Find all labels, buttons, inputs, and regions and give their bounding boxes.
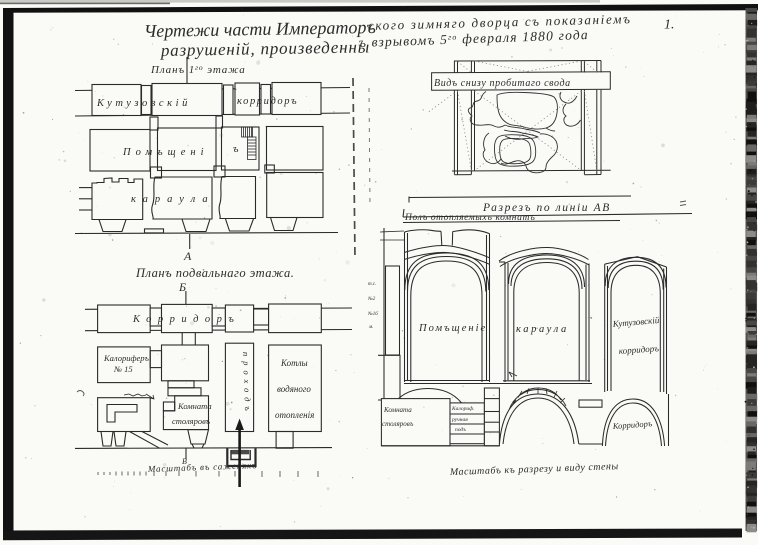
- svg-text:Котлы: Котлы: [280, 358, 308, 368]
- svg-text:Корридоръ: Корридоръ: [132, 314, 240, 325]
- svg-text:м.: м.: [368, 325, 373, 330]
- svg-text:Калориферъ: Калориферъ: [103, 353, 150, 363]
- svg-text:Кутузовскій: Кутузовскій: [96, 98, 191, 109]
- svg-text:разрушеній, произведенны: разрушеній, произведенны: [160, 37, 370, 60]
- svg-text:Комната: Комната: [383, 406, 412, 414]
- svg-text:отопленія: отопленія: [275, 410, 314, 420]
- svg-text:водяного: водяного: [277, 384, 311, 394]
- svg-text:№2: №2: [367, 296, 376, 302]
- svg-text:т.с.: т.с.: [368, 282, 376, 287]
- svg-text:Помъщені: Помъщені: [122, 147, 209, 158]
- svg-text:1.: 1.: [664, 18, 675, 33]
- svg-text:корридоръ: корридоръ: [237, 96, 298, 107]
- svg-text:Видъ снизу пробитаго свода: Видъ снизу пробитаго свода: [434, 78, 571, 89]
- svg-text:Калориф.: Калориф.: [451, 405, 474, 412]
- svg-text:Планъ подвальнаго этажа.: Планъ подвальнаго этажа.: [135, 266, 294, 280]
- svg-text:А: А: [183, 249, 192, 263]
- svg-text:ручная: ручная: [451, 417, 468, 423]
- svg-text:ъ: ъ: [233, 144, 239, 155]
- svg-text:Б: Б: [178, 280, 186, 294]
- svg-text:Помъщеніе: Помъщеніе: [418, 323, 487, 334]
- svg-text:столяровъ: столяровъ: [172, 416, 211, 426]
- svg-text:№ 15: № 15: [113, 364, 133, 374]
- svg-text:караула: караула: [131, 194, 215, 205]
- svg-text:караула: караула: [516, 324, 569, 335]
- svg-text:Комната: Комната: [177, 401, 212, 411]
- svg-text:столяровъ: столяровъ: [382, 420, 414, 428]
- svg-text:№16: №16: [367, 311, 378, 317]
- svg-text:подъ: подъ: [455, 426, 466, 433]
